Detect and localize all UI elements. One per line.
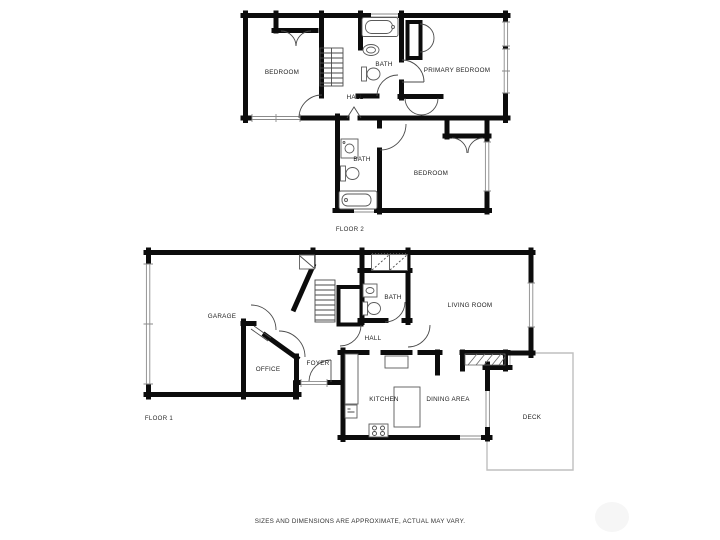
- toilet-symbol: [341, 166, 346, 181]
- floor-1-plan: GARAGE OFFICE FOYER HALL BATH LIVING ROO…: [144, 250, 574, 470]
- room-label-bath-lower: BATH: [353, 156, 371, 163]
- floor1-bath-fixtures: [363, 284, 381, 315]
- water-heater-symbol: [300, 255, 315, 269]
- disclaimer-text: SIZES AND DIMENSIONS ARE APPROXIMATE, AC…: [255, 518, 466, 525]
- floor1-caption: FLOOR 1: [145, 415, 173, 422]
- washer-dryer-symbol: [372, 254, 408, 271]
- floor2-walls: [243, 13, 508, 212]
- faucet-symbol: [392, 26, 395, 29]
- room-label-deck: DECK: [523, 414, 542, 421]
- floor-2-plan: BEDROOM BATH PRIMARY BEDROOM HALL BATH B…: [243, 12, 510, 233]
- island-counter-symbol: [394, 387, 420, 427]
- room-label-garage: GARAGE: [208, 313, 236, 320]
- faucet-symbol: [345, 199, 348, 202]
- room-label-kitchen: KITCHEN: [369, 396, 399, 403]
- floor2-caption: FLOOR 2: [336, 226, 364, 233]
- floorplan-image: BEDROOM BATH PRIMARY BEDROOM HALL BATH B…: [0, 0, 720, 540]
- room-label-bath-top: BATH: [375, 61, 393, 68]
- room-label-bedroom-lower: BEDROOM: [414, 170, 448, 177]
- room-label-hall-f2: HALL: [347, 94, 364, 101]
- counter-symbol: [345, 354, 358, 404]
- deck-outline: [487, 353, 573, 470]
- watermark-smudge: [595, 502, 629, 532]
- room-label-office: OFFICE: [256, 366, 281, 373]
- fireplace-symbol: [465, 354, 505, 365]
- room-label-foyer: FOYER: [307, 360, 330, 367]
- room-label-hall-f1: HALL: [365, 335, 382, 342]
- dishwasher-symbol: [345, 405, 357, 418]
- room-label-dining-area: DINING AREA: [426, 396, 470, 403]
- floor2-top-bath-fixtures: [362, 18, 399, 82]
- room-label-bedroom-left: BEDROOM: [265, 69, 299, 76]
- floor2-primary-closet-walls: [408, 22, 421, 58]
- toilet-symbol: [363, 302, 368, 315]
- stove-symbol: [369, 424, 388, 437]
- pantry-counter-symbol: [385, 356, 408, 368]
- room-label-primary-bedroom: PRIMARY BEDROOM: [424, 67, 491, 74]
- room-label-bath-f1: BATH: [384, 294, 402, 301]
- floor1-walls: [146, 250, 533, 440]
- toilet-symbol: [362, 67, 367, 81]
- floor1-stairs-symbol: [315, 280, 335, 322]
- room-label-living-room: LIVING ROOM: [448, 302, 493, 309]
- floor2-lower-bath-fixtures: [339, 139, 377, 209]
- floorplan-page: BEDROOM BATH PRIMARY BEDROOM HALL BATH B…: [0, 0, 720, 540]
